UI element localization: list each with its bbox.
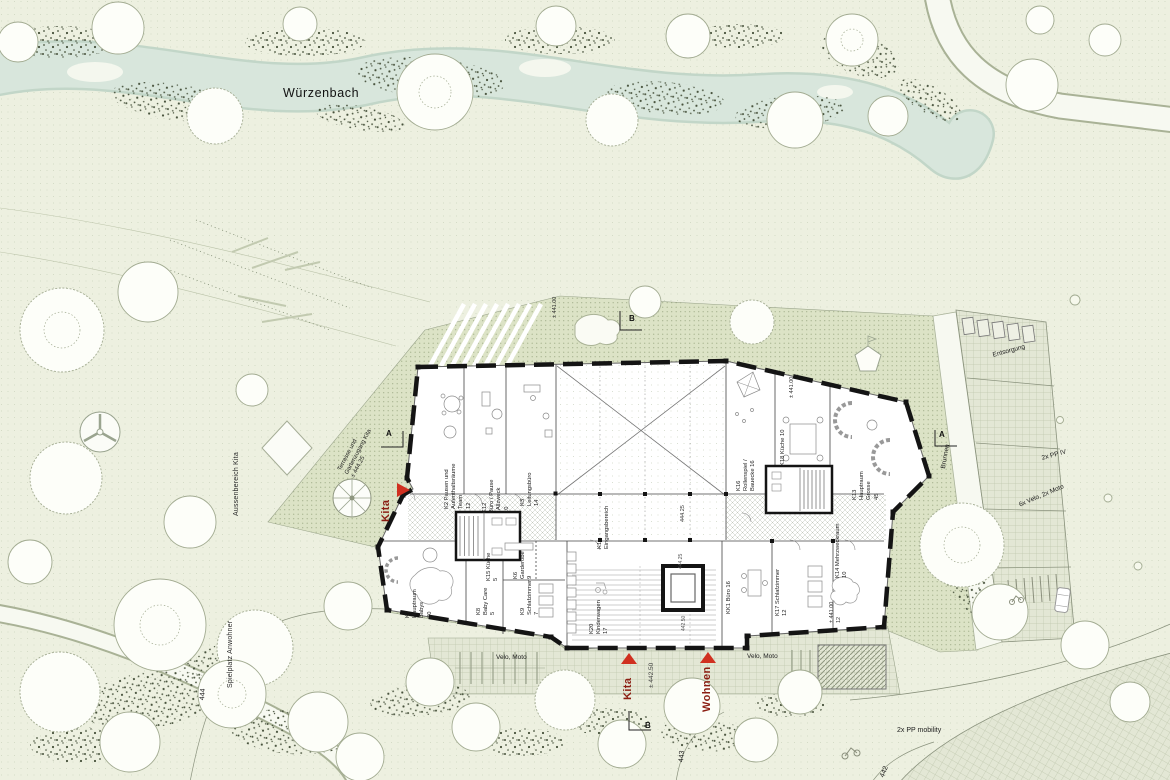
- label-room-k20: K20 Kinderwagen 17: [589, 600, 611, 634]
- label-entrance-kita-south: Kita: [622, 678, 636, 700]
- label-room-k18: K18 Küche 10: [780, 430, 787, 466]
- label-entrance-wohnen: Wohnen: [701, 666, 715, 712]
- section-marker-a-east: A: [939, 430, 945, 440]
- label-contour-443: 443: [678, 750, 688, 762]
- carousel: [333, 479, 371, 517]
- label-elevation-terrace-ne: ± 441.00: [789, 377, 796, 398]
- label-room-k3: K3 Leitungsbüro 14: [520, 472, 542, 506]
- label-entrance-kita-west: Kita: [380, 500, 394, 522]
- label-room-k7: K7 Hauptraum Babys 30: [405, 589, 434, 618]
- moto-shelter: [818, 645, 886, 689]
- section-marker-a-west: A: [386, 429, 392, 439]
- label-aussenbereich-kita: Aussenbereich Kita: [233, 452, 242, 516]
- label-room-k1: K1 Eingangsbereich: [597, 506, 611, 549]
- label-elevation-stair-lower: 442.50: [681, 616, 687, 631]
- label-room-k14: K14 Mehrzweckraum 10: [835, 524, 849, 578]
- label-velo-moto-east: Velo, Moto: [747, 653, 778, 661]
- site-plan: Würzenbach Aussenbereich Kita Spielplatz…: [0, 0, 1170, 780]
- sandbank: [519, 59, 571, 77]
- stair-core-east: [766, 466, 832, 513]
- label-room-k6: K6 Garderobe 9: [513, 551, 535, 579]
- spinner: [80, 412, 120, 452]
- label-elevation-stair-upper: 444.25: [678, 554, 684, 569]
- section-marker-b-north: B: [629, 314, 635, 324]
- car-icon: [1054, 587, 1070, 613]
- label-room-k12: K12 Büro / Pause / Allzweck 10: [482, 479, 511, 513]
- label-contour-444: 444: [199, 688, 209, 700]
- plan-drawing: [0, 0, 1170, 780]
- label-elevation-south-court: ± 442.50: [648, 663, 656, 688]
- label-elevation-hall: 444.25: [680, 505, 687, 522]
- label-elevation-k14: ± 441.00 12: [829, 602, 843, 623]
- label-pp-mobility: 2x PP mobility: [897, 727, 941, 736]
- label-elevation-terrace-nw: ± 441.00: [552, 297, 559, 318]
- sandbank: [67, 62, 123, 82]
- label-room-k9: K9 Schlafzimmer 7: [520, 580, 542, 615]
- label-room-k17: K17 Schlafzimmer 12: [775, 569, 789, 616]
- stream-label: Würzenbach: [283, 86, 359, 102]
- label-room-k16: K16 Rollenspiel / Bauecke 16: [736, 459, 758, 491]
- label-velo-moto-west: Velo, Moto: [496, 654, 527, 662]
- label-room-k13: K13 Hauptraum Grosse 45: [852, 471, 881, 500]
- label-room-k15: K15 Küche 5: [486, 553, 500, 581]
- label-room-kk1: KK1 Büro 16: [726, 581, 733, 614]
- entrance-hall: [556, 362, 726, 540]
- label-spielplatz-anwohner: Spielplatz Anwohner: [227, 621, 236, 688]
- label-room-k2: K2 Pausen und Aufenthaltsräume Team 12: [444, 464, 473, 509]
- label-room-k8: K8 Baby Care 5: [476, 588, 498, 615]
- section-marker-b-south: B: [645, 721, 651, 731]
